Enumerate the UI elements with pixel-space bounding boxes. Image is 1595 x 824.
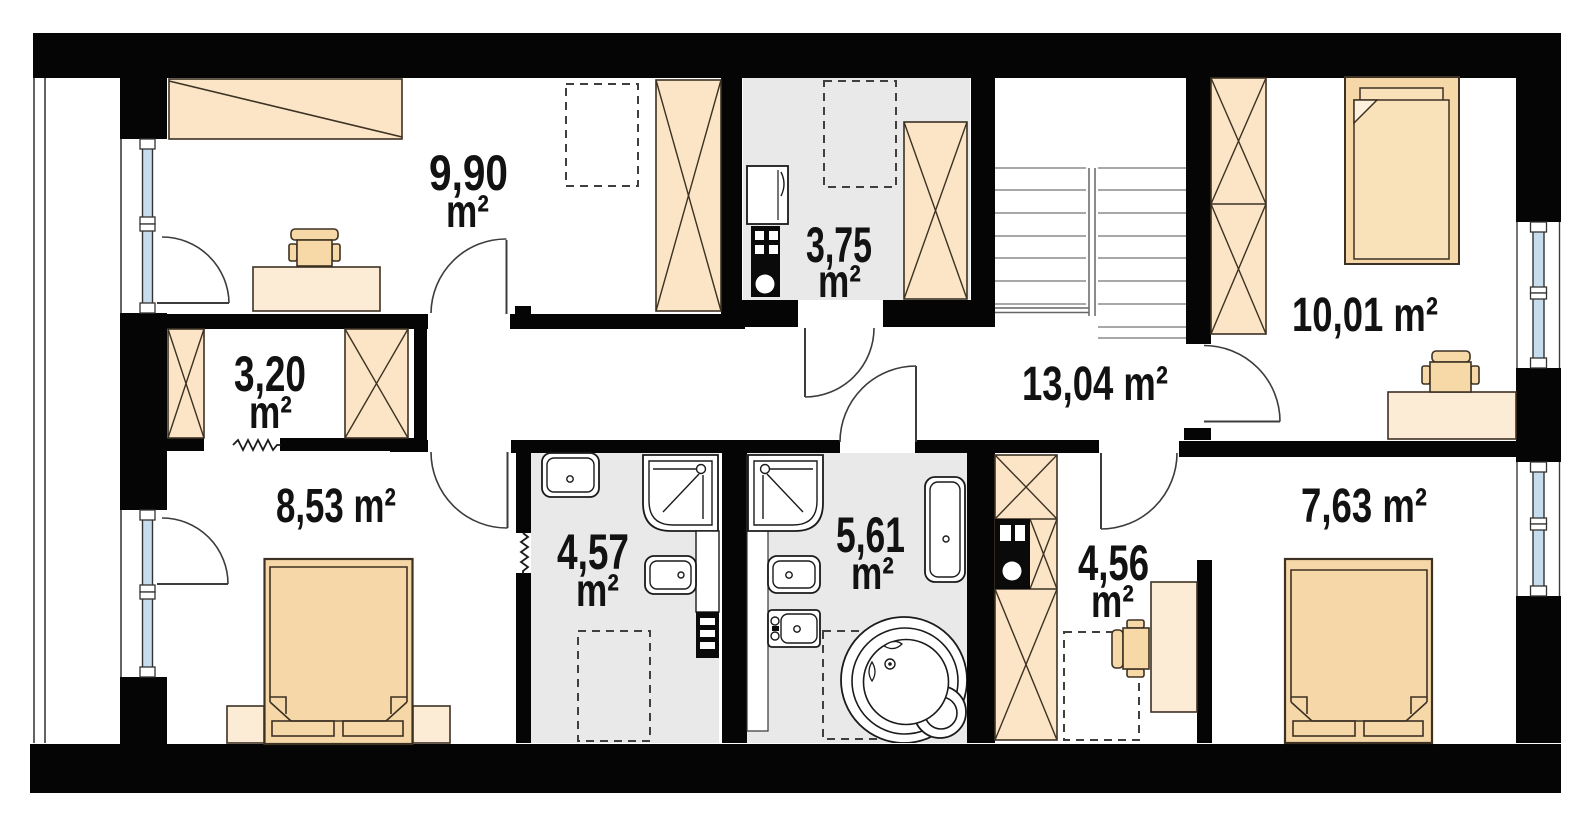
svg-text:m²: m²	[1091, 575, 1134, 627]
svg-text:13,04 m²: 13,04 m²	[1022, 358, 1168, 411]
svg-text:m²: m²	[818, 255, 861, 307]
svg-text:7,63 m²: 7,63 m²	[1301, 480, 1427, 533]
svg-text:m²: m²	[446, 185, 489, 237]
svg-text:10,01 m²: 10,01 m²	[1292, 289, 1438, 342]
svg-text:8,53 m²: 8,53 m²	[276, 480, 396, 533]
svg-text:m²: m²	[576, 564, 619, 616]
svg-text:m²: m²	[249, 386, 292, 438]
svg-text:m²: m²	[851, 547, 894, 599]
